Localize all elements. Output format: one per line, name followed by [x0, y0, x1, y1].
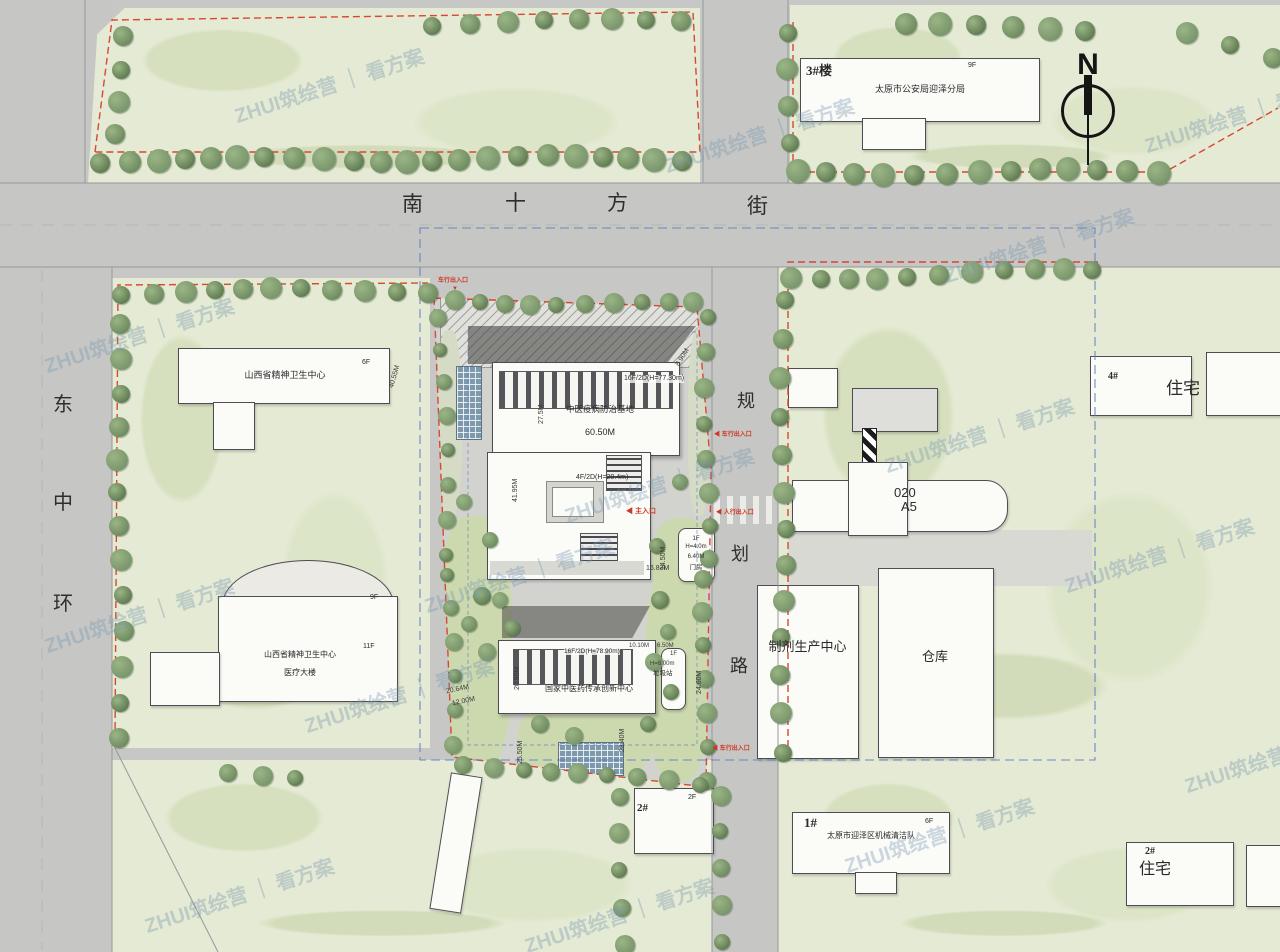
arrow-left-icon: ◀: [716, 510, 722, 516]
gatehouse-width: 6.40M: [678, 554, 714, 561]
waste-dim2: 6.50M: [657, 643, 674, 650]
plant-name: 制剂生产中心: [760, 640, 855, 655]
arrow-left-icon: ◀: [714, 432, 720, 438]
north-circle: [1061, 84, 1115, 138]
cleaning-floors: 6F: [925, 818, 933, 826]
gatehouse-height: H=4.0m: [678, 544, 714, 551]
tower1-spec: 16F/2D(H=77.30m): [624, 375, 684, 383]
dim-41-95: 41.95M: [512, 462, 520, 502]
street-west-char2: 中: [53, 486, 73, 515]
dim-14-50: 14.50M: [660, 534, 668, 570]
street-middle-char3: 路: [730, 652, 748, 678]
b2f-tag: 2#: [637, 802, 648, 815]
entrance-label: 车行出入口: [720, 746, 750, 752]
tower2-spec: 16F/2D(H=78.90m): [564, 648, 620, 655]
waste-height: H=8.00m: [650, 661, 675, 668]
hospital-name: 山西省精神卫生中心: [250, 650, 350, 659]
street-middle-char2: 划: [731, 540, 749, 566]
mhc-floors: 6F: [362, 359, 370, 367]
north-stem: [1087, 113, 1089, 165]
entrance-label: 人行出入口: [724, 510, 754, 516]
north-bar: [1084, 75, 1092, 115]
waste-dim1: 10.10M: [629, 643, 649, 650]
entrance-label: 车行出入口: [438, 278, 468, 284]
dim-25-50: 25.50M: [517, 728, 525, 764]
b2f-floors: 2F: [688, 794, 696, 802]
cleaning-tag: 1#: [804, 816, 817, 831]
street-south-char1: 南: [402, 188, 423, 218]
site-plan-canvas: 南 十 方 街 东 中 环 规 划 路 3#楼 9F 太原市公安局迎泽分局 山西…: [0, 0, 1280, 952]
a5-line2: A5: [901, 500, 917, 515]
arrow-left-icon: ◀: [712, 746, 718, 752]
police-tag: 3#楼: [806, 64, 832, 79]
podium-spec: 4F/2D(H=20.4m): [576, 474, 628, 482]
street-west-char1: 东: [53, 388, 73, 417]
street-middle-char1: 规: [737, 387, 755, 413]
entrance-vehicle-mid: ◀ 车行出入口: [714, 432, 752, 439]
warehouse-name: 仓库: [905, 650, 965, 665]
gatehouse-floors: 1F: [680, 536, 712, 543]
hospital-floors: 11F: [363, 643, 375, 651]
res2-name: 住宅: [1139, 861, 1171, 879]
police-floors: 9F: [968, 62, 976, 70]
entrance-pedestrian: ◀ 人行出入口: [716, 510, 754, 517]
north-arrow: N: [1056, 50, 1120, 158]
street-west-char3: 环: [53, 587, 73, 616]
cleaning-name: 太原市迎泽区机械清洁队: [815, 831, 927, 840]
entrance-vehicle-top-arrow: ▼: [452, 286, 458, 293]
police-name: 太原市公安局迎泽分局: [830, 84, 1010, 94]
waste-floors: 1F: [670, 651, 677, 658]
entrance-main: ◀ 主入口: [626, 508, 656, 516]
res2-tag: 2#: [1145, 846, 1155, 858]
waste-name: 垃圾站: [653, 670, 673, 677]
res4-tag: 4#: [1108, 371, 1118, 383]
entrance-vehicle-top: 车行出入口: [438, 278, 468, 285]
dim-20-95: 20.95M: [514, 652, 522, 690]
tower2-name: 国家中医药传承创新中心: [526, 684, 652, 693]
street-south-char3: 方: [607, 187, 628, 217]
dim-23-40: 23.40M: [619, 716, 627, 752]
hospital-name2: 医疗大楼: [250, 668, 350, 677]
dim-27-5: 27.5M: [538, 388, 546, 424]
hospital-floors2: 9F: [370, 594, 378, 602]
tower1-width: 60.50M: [568, 427, 632, 437]
arrow-down-icon: ▼: [452, 286, 458, 292]
street-south-char2: 十: [505, 187, 526, 217]
gatehouse-name: 门房: [680, 564, 712, 571]
entrance-label: 车行出入口: [722, 432, 752, 438]
entrance-label: 主入口: [635, 508, 656, 515]
arrow-left-icon: ◀: [626, 508, 633, 515]
dim-24-60: 24.60M: [696, 656, 704, 694]
mhc-name: 山西省精神卫生中心: [215, 370, 355, 380]
street-south-char4: 街: [747, 190, 768, 220]
res4-name: 住宅: [1166, 379, 1200, 399]
entrance-vehicle-bottom: ◀ 车行出入口: [712, 746, 750, 753]
tower1-name: 中医疫病防治基地: [552, 405, 648, 415]
